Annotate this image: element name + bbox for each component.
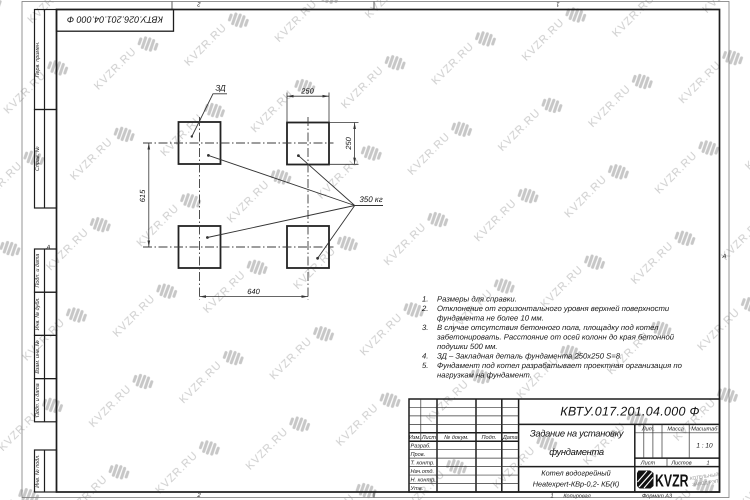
svg-text:Подп.: Подп.	[481, 434, 496, 441]
svg-text:Т. контр.: Т. контр.	[411, 460, 435, 466]
svg-text:КВТУ.026.201.04.000 Ф: КВТУ.026.201.04.000 Ф	[67, 15, 163, 25]
svg-text:Котел водогрейный: Котел водогрейный	[541, 469, 610, 478]
svg-text:нагрузкам на фундамент.: нагрузкам на фундамент.	[437, 371, 532, 380]
svg-text:Задание на установку: Задание на установку	[530, 427, 625, 438]
svg-text:Подп. и дата: Подп. и дата	[35, 254, 41, 288]
svg-text:Лист: Лист	[640, 461, 656, 467]
svg-text:Перв. примен.: Перв. примен.	[35, 42, 41, 78]
svg-text:3.: 3.	[422, 323, 428, 332]
svg-text:Нач.отд.: Нач.отд.	[411, 468, 435, 475]
svg-text:ЗД: ЗД	[215, 84, 226, 93]
svg-text:1: 1	[706, 461, 709, 467]
svg-text:250: 250	[300, 87, 314, 96]
svg-text:Листов: Листов	[670, 461, 691, 467]
svg-text:Справ. №: Справ. №	[35, 146, 41, 171]
svg-text:Отклонение от горизонтального: Отклонение от горизонтального уровня вер…	[437, 304, 670, 313]
svg-text:подушки 500 мм.: подушки 500 мм.	[437, 342, 498, 351]
svg-text:В случае отсутствия бетонного: В случае отсутствия бетонного пола, площ…	[437, 323, 659, 332]
svg-text:Фундамент под котел разрабатыв: Фундамент под котел разрабатывает проект…	[437, 361, 683, 370]
svg-text:Пров.: Пров.	[411, 452, 426, 458]
svg-text:Инв. № дубл.: Инв. № дубл.	[35, 297, 41, 330]
svg-text:1: 1	[550, 492, 553, 499]
svg-text:Лист: Лист	[421, 435, 437, 441]
svg-text:1.: 1.	[422, 295, 428, 304]
svg-text:Подп. и дата: Подп. и дата	[35, 383, 41, 417]
svg-text:Формат А3: Формат А3	[642, 493, 673, 499]
svg-text:Инв. № подл.: Инв. № подл.	[35, 454, 41, 487]
svg-text:KVZR: KVZR	[655, 471, 689, 491]
svg-text:Дата: Дата	[502, 435, 518, 441]
svg-text:1: 1	[556, 1, 559, 8]
svg-text:фундамента не более 10 мм.: фундамента не более 10 мм.	[437, 314, 544, 323]
svg-text:№ докум.: № докум.	[444, 434, 469, 441]
svg-text:1 : 10: 1 : 10	[696, 443, 713, 450]
svg-text:А: А	[721, 253, 726, 260]
svg-text:250: 250	[344, 136, 353, 150]
svg-text:Изм.: Изм.	[409, 435, 421, 441]
svg-text:Утв.: Утв.	[410, 486, 424, 492]
svg-text:Размеры для справки.: Размеры для справки.	[437, 295, 517, 304]
svg-text:Н. контр.: Н. контр.	[411, 477, 436, 483]
svg-text:Масса: Масса	[667, 427, 684, 433]
svg-text:Взам. инв. №: Взам. инв. №	[35, 340, 41, 374]
svg-text:4.: 4.	[422, 352, 428, 361]
svg-text:2: 2	[197, 1, 202, 8]
svg-text:Масштаб: Масштаб	[691, 426, 718, 433]
svg-text:ЗД – Закладная деталь фундамен: ЗД – Закладная деталь фундамента 250х250…	[437, 352, 622, 361]
svg-text:615: 615	[138, 189, 147, 202]
svg-text:Копировал: Копировал	[563, 493, 590, 499]
svg-text:КВТУ.017.201.04.000 Ф: КВТУ.017.201.04.000 Ф	[560, 405, 700, 419]
svg-text:Лит.: Лит.	[641, 427, 655, 433]
svg-text:А: А	[45, 244, 50, 251]
svg-text:2.: 2.	[421, 304, 428, 313]
svg-text:350 кг: 350 кг	[359, 195, 382, 204]
svg-text:фундамента: фундамента	[549, 446, 604, 457]
svg-text:забетонировать. Расстояние от: забетонировать. Расстояние от осей колон…	[436, 333, 675, 342]
svg-text:5.: 5.	[422, 361, 428, 370]
svg-text:Разраб.: Разраб.	[411, 443, 431, 450]
svg-text:2: 2	[196, 492, 201, 499]
svg-text:Heatexpert-КВр-0,2- КБ(К): Heatexpert-КВр-0,2- КБ(К)	[533, 479, 620, 488]
svg-text:640: 640	[247, 287, 260, 296]
